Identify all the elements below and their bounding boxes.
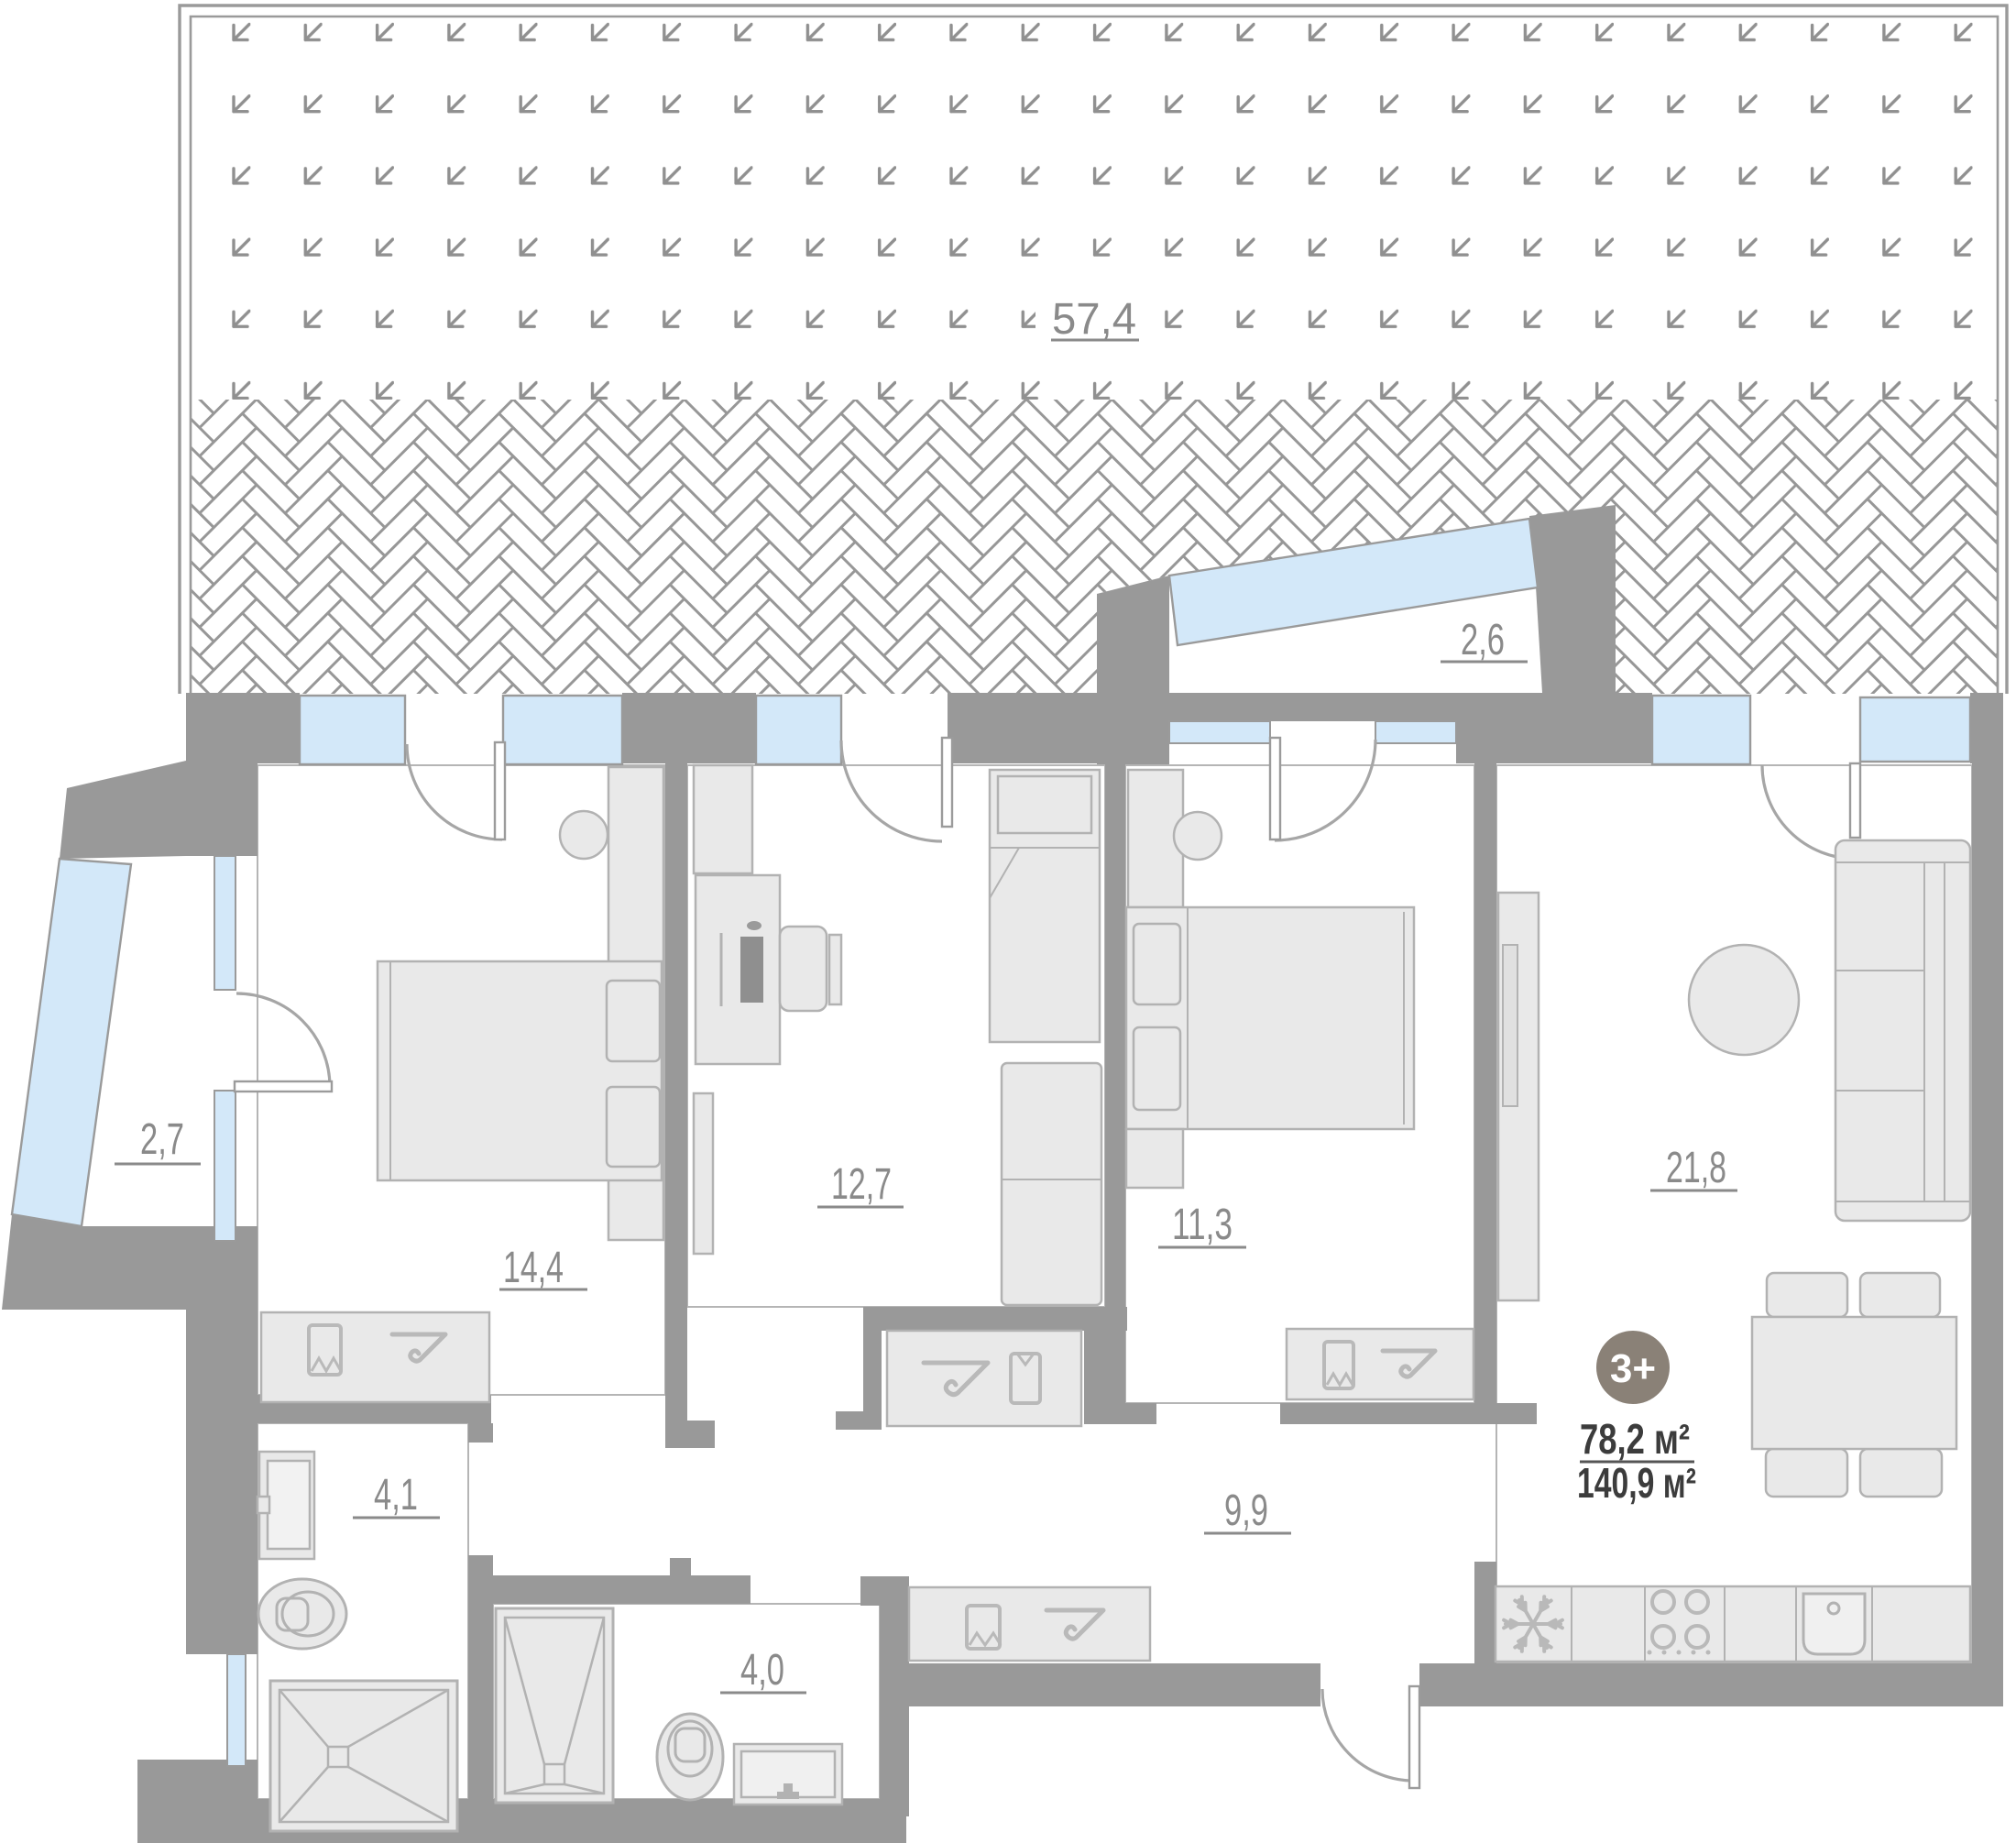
svg-text:4,0: 4,0	[740, 1646, 784, 1695]
svg-text:9,9: 9,9	[1224, 1486, 1268, 1535]
svg-text:11,3: 11,3	[1172, 1201, 1233, 1249]
svg-text:3+: 3+	[1610, 1346, 1656, 1391]
svg-text:14,4: 14,4	[503, 1244, 564, 1292]
svg-text:4,1: 4,1	[374, 1471, 418, 1519]
svg-text:2,7: 2,7	[140, 1115, 184, 1164]
svg-text:78,2 м²: 78,2 м²	[1580, 1415, 1690, 1463]
svg-text:21,8: 21,8	[1666, 1144, 1726, 1192]
svg-text:57,4: 57,4	[1052, 295, 1136, 344]
svg-text:12,7: 12,7	[831, 1160, 892, 1209]
svg-text:2,6: 2,6	[1461, 616, 1505, 664]
svg-text:140,9 м²: 140,9 м²	[1577, 1459, 1696, 1507]
